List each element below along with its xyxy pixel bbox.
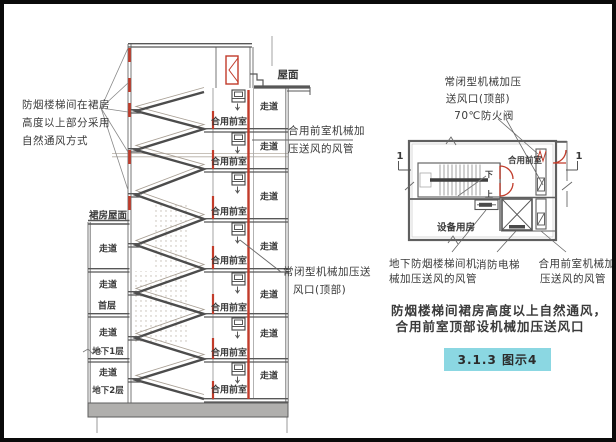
outlet-note-line1: 常闭型机械加压送 xyxy=(283,267,371,278)
left-corridor-label: 走道 xyxy=(99,246,117,255)
section-view xyxy=(83,36,353,433)
figure-badge: 3.1.3 图示4 xyxy=(444,348,551,371)
lobby-duct-note-line2: 压送风的风管 xyxy=(288,144,354,155)
fire-damper-note: 70℃防火阀 xyxy=(454,111,514,122)
lobby-label: 合用前室 xyxy=(211,350,247,359)
floor-tag-b2: 地下2层 xyxy=(92,387,123,396)
section-marker-left: 1 xyxy=(397,152,404,162)
corridor-label: 走道 xyxy=(260,331,278,340)
corridor-label: 走道 xyxy=(260,244,278,253)
plan-lobby-duct-note-line1: 合用前室机械加 xyxy=(539,259,616,270)
equipment-room-label: 设备用房 xyxy=(437,223,475,233)
corridor-label: 走道 xyxy=(260,194,278,203)
basement-duct-note-line2: 械加压送风的风管 xyxy=(389,274,477,285)
caption-line2: 合用前室顶部设机械加压送风口 xyxy=(395,321,584,334)
plan-outlet-note-line1: 常闭型机械加压 xyxy=(445,77,522,88)
natural-vent-note-line2: 高度以上部分采用 xyxy=(22,118,110,129)
fire-elevator-shaft xyxy=(502,199,532,230)
caption-line1: 防烟楼梯间裙房高度以上自然通风， xyxy=(391,305,607,318)
lobby-label: 合用前室 xyxy=(211,258,247,267)
air-outlet-icons xyxy=(232,90,245,383)
podium-roof-label: 裙房屋面 xyxy=(89,211,127,221)
natural-vent-note-line3: 自然通风方式 xyxy=(22,136,88,147)
corridor-label: 走道 xyxy=(260,104,278,113)
lobby-label: 合用前室 xyxy=(211,305,247,314)
left-corridor-label: 走道 xyxy=(99,282,117,291)
natural-vent-note-line1: 防烟楼梯间在裙房 xyxy=(22,100,110,111)
plan-view xyxy=(399,119,578,252)
roof-door-icon xyxy=(226,56,238,84)
plan-lobby-duct-note-line2: 压送风的风管 xyxy=(540,274,606,285)
outlet-note-line2: 风口(顶部) xyxy=(293,285,346,296)
lobby-duct-note-line1: 合用前室机械加 xyxy=(288,126,365,137)
corridor-label: 走道 xyxy=(260,292,278,301)
diagram-page: 防烟楼梯间在裙房 高度以上部分采用 自然通风方式 屋面 走道 走道 走道 走道 … xyxy=(0,0,616,442)
lobby-label: 合用前室 xyxy=(211,209,247,218)
basement-duct-note-line1: 地下防烟楼梯间机 xyxy=(389,259,477,270)
floor-tag-b1: 地下1层 xyxy=(92,348,123,357)
section-marker-right: 1 xyxy=(576,152,583,162)
lobby-label: 合用前室 xyxy=(211,119,247,128)
base-slab xyxy=(88,403,288,417)
plan-outlet-note-line2: 送风口(顶部) xyxy=(446,94,510,105)
reference-line xyxy=(112,154,288,157)
fire-elevator-label: 消防电梯 xyxy=(476,260,520,271)
plan-lobby-label: 合用前室 xyxy=(508,157,542,166)
corridor-label: 走道 xyxy=(260,144,278,153)
stair-up-label: 上 xyxy=(485,191,493,199)
left-corridor-label: 走道 xyxy=(99,330,117,339)
lobby-label: 合用前室 xyxy=(211,387,247,396)
corridor-label: 走道 xyxy=(260,373,278,382)
left-corridor-label: 走道 xyxy=(99,370,117,379)
stair-down-label: 下 xyxy=(485,171,493,179)
roof-label: 屋面 xyxy=(278,70,299,81)
lobby-label: 合用前室 xyxy=(211,159,247,168)
floor-tag-first: 首层 xyxy=(98,303,116,312)
